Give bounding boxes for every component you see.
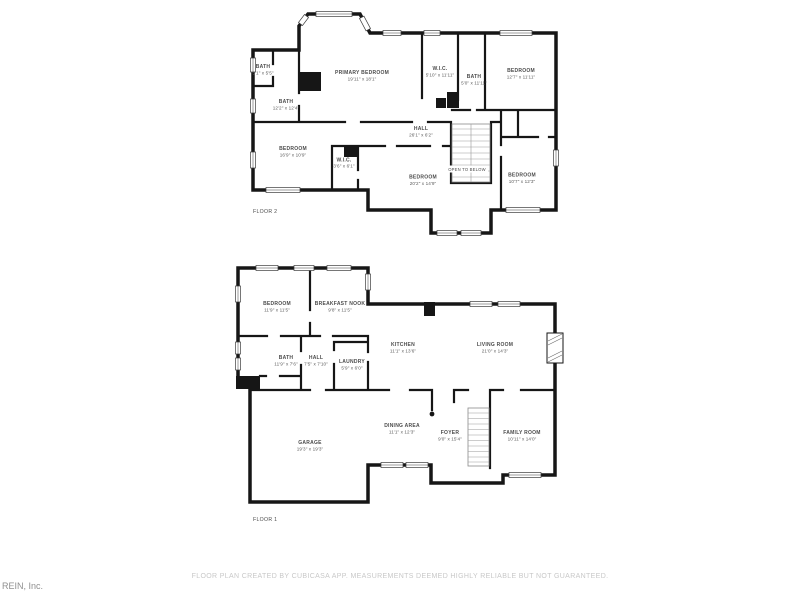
floor2-windows: [251, 12, 559, 236]
room-name: HALL: [414, 126, 428, 132]
floor2-label: FLOOR 2: [253, 209, 277, 215]
room-dims: 11'9" x 11'5": [264, 308, 290, 313]
room-name: BEDROOM: [263, 301, 291, 307]
floor1-windows: [236, 266, 542, 478]
room-dims: 10'7" x 12'3": [509, 179, 536, 184]
open-to-below-label: OPEN TO BELOW: [448, 167, 486, 172]
room-dims: 20'2" x 14'9": [410, 181, 437, 186]
floor2-closet-block: [300, 72, 321, 91]
rein-watermark: REIN, Inc.: [2, 581, 43, 591]
room-dims: 3'6" x 6'1": [333, 164, 354, 169]
room-name: FAMILY ROOM: [503, 430, 540, 436]
floor2-wic-block: [344, 146, 357, 157]
floor1-entry-block: [236, 376, 260, 389]
floor-plan-drawing: BATH 5'1" x 5'5" BATH 12'2" x 12'4" PRIM…: [0, 0, 800, 600]
room-dims: 12'7" x 11'11": [507, 75, 536, 80]
room-dims: 5'10" x 11'11": [426, 73, 455, 78]
room-name: LIVING ROOM: [477, 342, 513, 348]
room-name: BATH: [279, 99, 294, 105]
floor1-post: [430, 412, 435, 417]
room-name: W.I.C.: [432, 66, 447, 72]
room-name: BEDROOM: [507, 68, 535, 74]
room-dims: 10'11" x 14'0": [508, 437, 537, 442]
room-name: HALL: [309, 355, 323, 361]
room-name: BATH: [279, 355, 294, 361]
floor2-stairs-icon: [446, 124, 490, 182]
room-name: BATH: [256, 64, 271, 70]
room-dims: 5'0" x 11'11": [461, 81, 487, 86]
room-name: BREAKFAST NOOK: [315, 301, 366, 307]
room-dims: 26'1" x 6'2": [409, 133, 433, 138]
fireplace-icon: [547, 333, 563, 363]
room-dims: 11'1" x 12'3": [389, 430, 415, 435]
floor1-stairs-icon: [468, 408, 489, 466]
room-name: LAUNDRY: [339, 359, 365, 365]
floor2-bath-fixture-b: [447, 92, 459, 108]
room-name: BEDROOM: [409, 175, 437, 181]
room-dims: 21'0" x 14'3": [482, 349, 509, 354]
floor1-chimney-block: [424, 302, 435, 316]
floor2-outer-walls: [253, 14, 556, 233]
room-name: BATH: [467, 74, 482, 80]
room-name: FOYER: [441, 430, 460, 436]
room-dims: 16'9" x 10'9": [280, 153, 307, 158]
room-name: KITCHEN: [391, 342, 415, 348]
floor1-label: FLOOR 1: [253, 517, 277, 523]
room-name: GARAGE: [298, 440, 322, 446]
room-dims: 12'2" x 12'4": [273, 106, 300, 111]
room-name: BEDROOM: [279, 146, 307, 152]
floor2-plan: BATH 5'1" x 5'5" BATH 12'2" x 12'4" PRIM…: [251, 12, 559, 236]
room-dims: 19'11" x 18'1": [348, 77, 377, 82]
room-name: BEDROOM: [508, 173, 536, 179]
room-name: PRIMARY BEDROOM: [335, 70, 389, 76]
room-dims: 19'3" x 19'3": [297, 447, 324, 452]
room-dims: 11'1" x 13'6": [390, 349, 416, 354]
room-dims: 5'1" x 5'5": [252, 71, 273, 76]
floor1-plan: BEDROOM 11'9" x 11'5" BREAKFAST NOOK 9'8…: [236, 266, 564, 524]
room-dims: 9'0" x 15'4": [438, 437, 462, 442]
disclaimer-text: FLOOR PLAN CREATED BY CUBICASA APP. MEAS…: [0, 573, 800, 580]
room-dims: 9'8" x 11'5": [328, 308, 352, 313]
floor2-bath-fixture-a: [436, 98, 446, 108]
room-name: DINING AREA: [384, 423, 420, 429]
room-dims: 7'5" x 7'10": [304, 362, 328, 367]
room-dims: 11'9" x 7'6": [274, 362, 298, 367]
room-dims: 5'9" x 6'0": [341, 366, 362, 371]
floor-plan-page: BATH 5'1" x 5'5" BATH 12'2" x 12'4" PRIM…: [0, 0, 800, 600]
